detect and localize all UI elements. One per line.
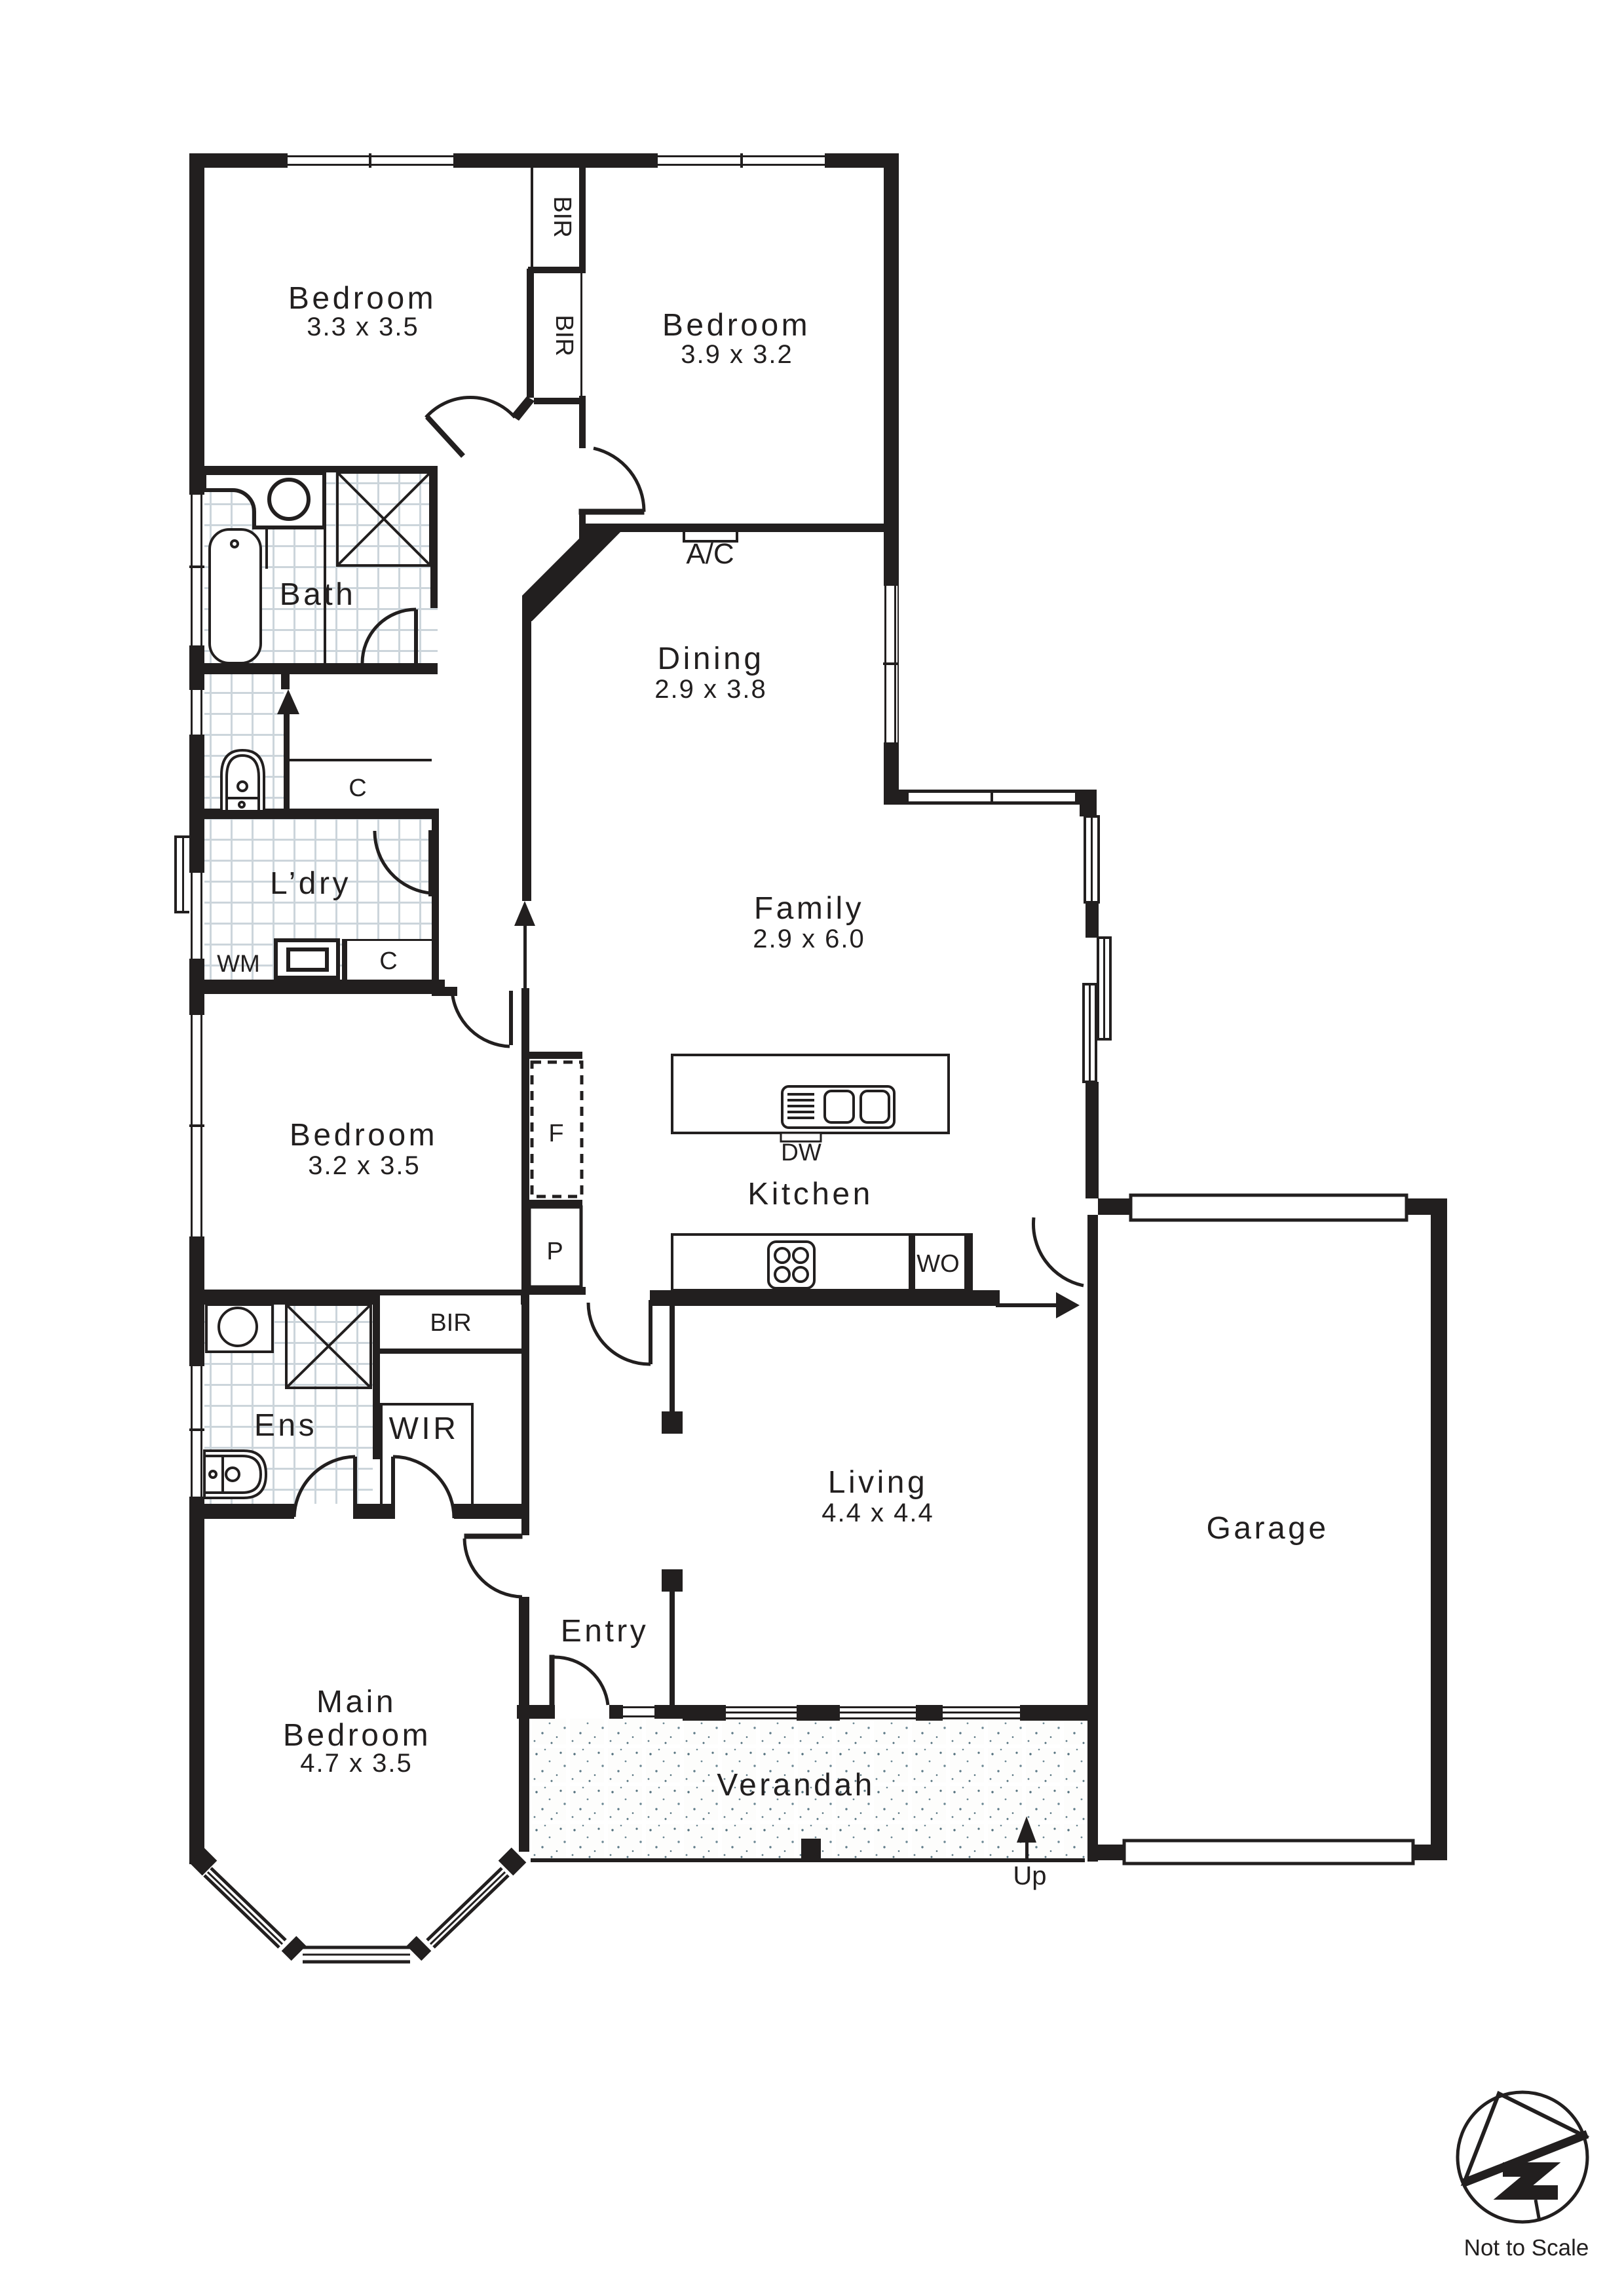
svg-text:C: C xyxy=(379,947,397,975)
svg-text:Living: Living xyxy=(828,1465,928,1500)
svg-text:A/C: A/C xyxy=(686,538,734,570)
svg-text:BIR: BIR xyxy=(550,315,578,356)
svg-text:Bedroom: Bedroom xyxy=(288,281,436,316)
svg-text:2.9 x 3.8: 2.9 x 3.8 xyxy=(654,675,766,704)
svg-text:3.2 x 3.5: 3.2 x 3.5 xyxy=(308,1151,420,1180)
svg-text:Kitchen: Kitchen xyxy=(747,1177,873,1212)
svg-text:Verandah: Verandah xyxy=(717,1768,875,1803)
svg-text:4.4 x 4.4: 4.4 x 4.4 xyxy=(821,1499,934,1527)
svg-text:Main: Main xyxy=(316,1685,396,1719)
svg-text:BIR: BIR xyxy=(430,1309,471,1337)
svg-text:Bedroom: Bedroom xyxy=(662,308,810,343)
svg-text:3.9 x 3.2: 3.9 x 3.2 xyxy=(681,340,793,369)
svg-text:Bedroom: Bedroom xyxy=(290,1118,438,1153)
svg-text:Family: Family xyxy=(754,891,864,926)
svg-text:Ens: Ens xyxy=(254,1408,317,1443)
svg-text:2.9 x 6.0: 2.9 x 6.0 xyxy=(753,925,865,953)
svg-text:4.7 x 3.5: 4.7 x 3.5 xyxy=(300,1749,412,1778)
svg-text:C: C xyxy=(349,775,366,802)
svg-text:Garage: Garage xyxy=(1206,1511,1329,1546)
svg-text:P: P xyxy=(546,1238,563,1265)
svg-text:Dining: Dining xyxy=(657,641,764,676)
svg-text:WIR: WIR xyxy=(389,1411,459,1446)
svg-text:Not to Scale: Not to Scale xyxy=(1464,2235,1589,2261)
svg-text:Up: Up xyxy=(1013,1862,1046,1890)
svg-text:DW: DW xyxy=(781,1139,821,1166)
svg-text:Entry: Entry xyxy=(561,1614,649,1649)
svg-text:F: F xyxy=(548,1120,563,1147)
svg-text:WO: WO xyxy=(916,1250,959,1278)
svg-text:Bedroom: Bedroom xyxy=(283,1718,431,1753)
svg-text:L’dry: L’dry xyxy=(270,866,351,901)
svg-text:Bath: Bath xyxy=(280,577,356,612)
svg-text:3.3 x 3.5: 3.3 x 3.5 xyxy=(307,313,419,341)
svg-text:BIR: BIR xyxy=(548,196,576,237)
svg-text:WM: WM xyxy=(217,950,260,977)
